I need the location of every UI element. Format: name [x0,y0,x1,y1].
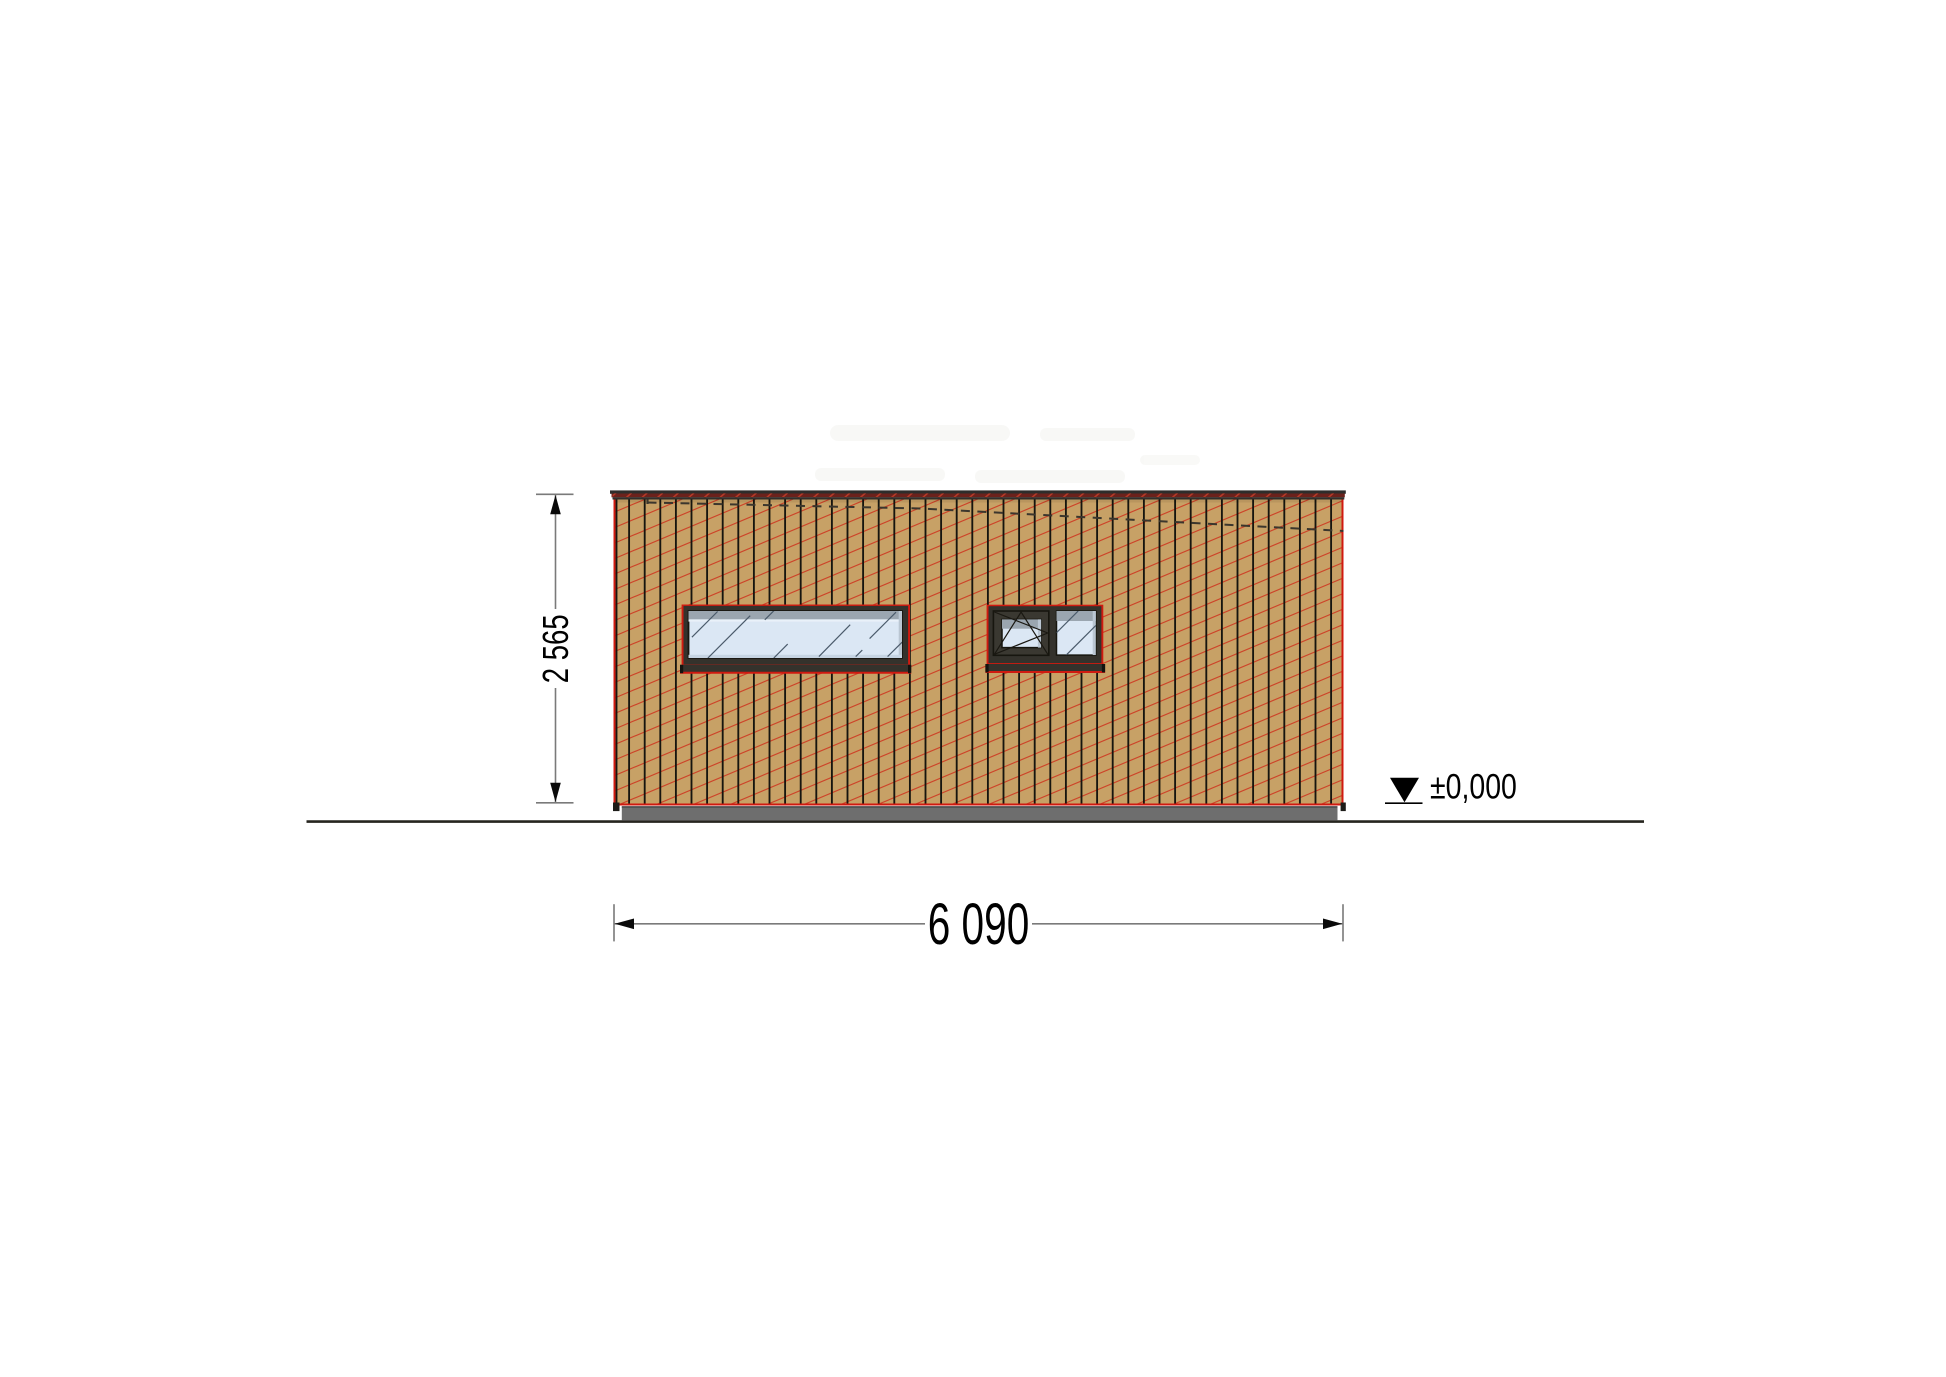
svg-text:±0,000: ±0,000 [1430,766,1517,806]
svg-text:2 565: 2 565 [535,614,576,683]
svg-text:6 090: 6 090 [928,892,1030,957]
